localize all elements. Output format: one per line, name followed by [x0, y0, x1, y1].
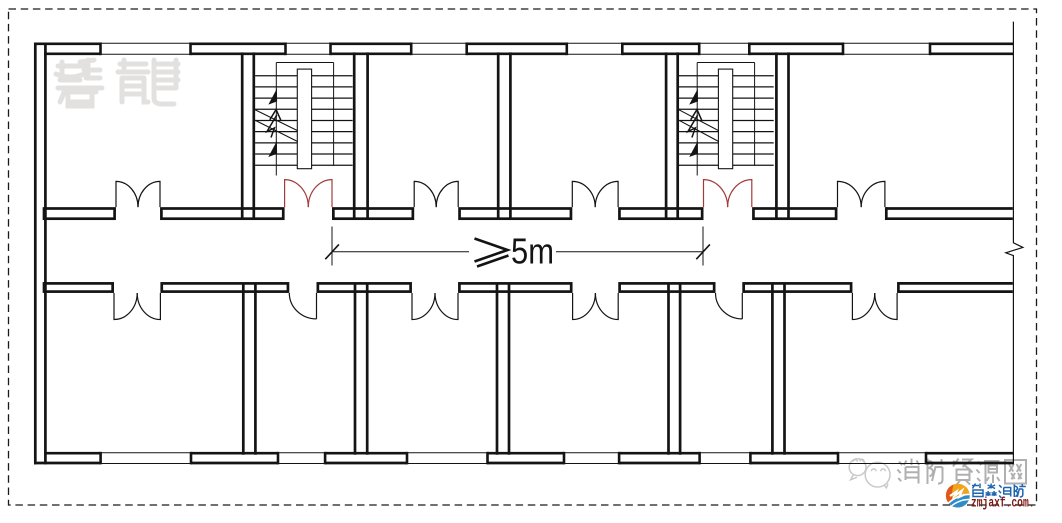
svg-text:5m: 5m: [511, 231, 554, 272]
svg-text:zmjaxf.com.: zmjaxf.com.: [971, 497, 1035, 512]
